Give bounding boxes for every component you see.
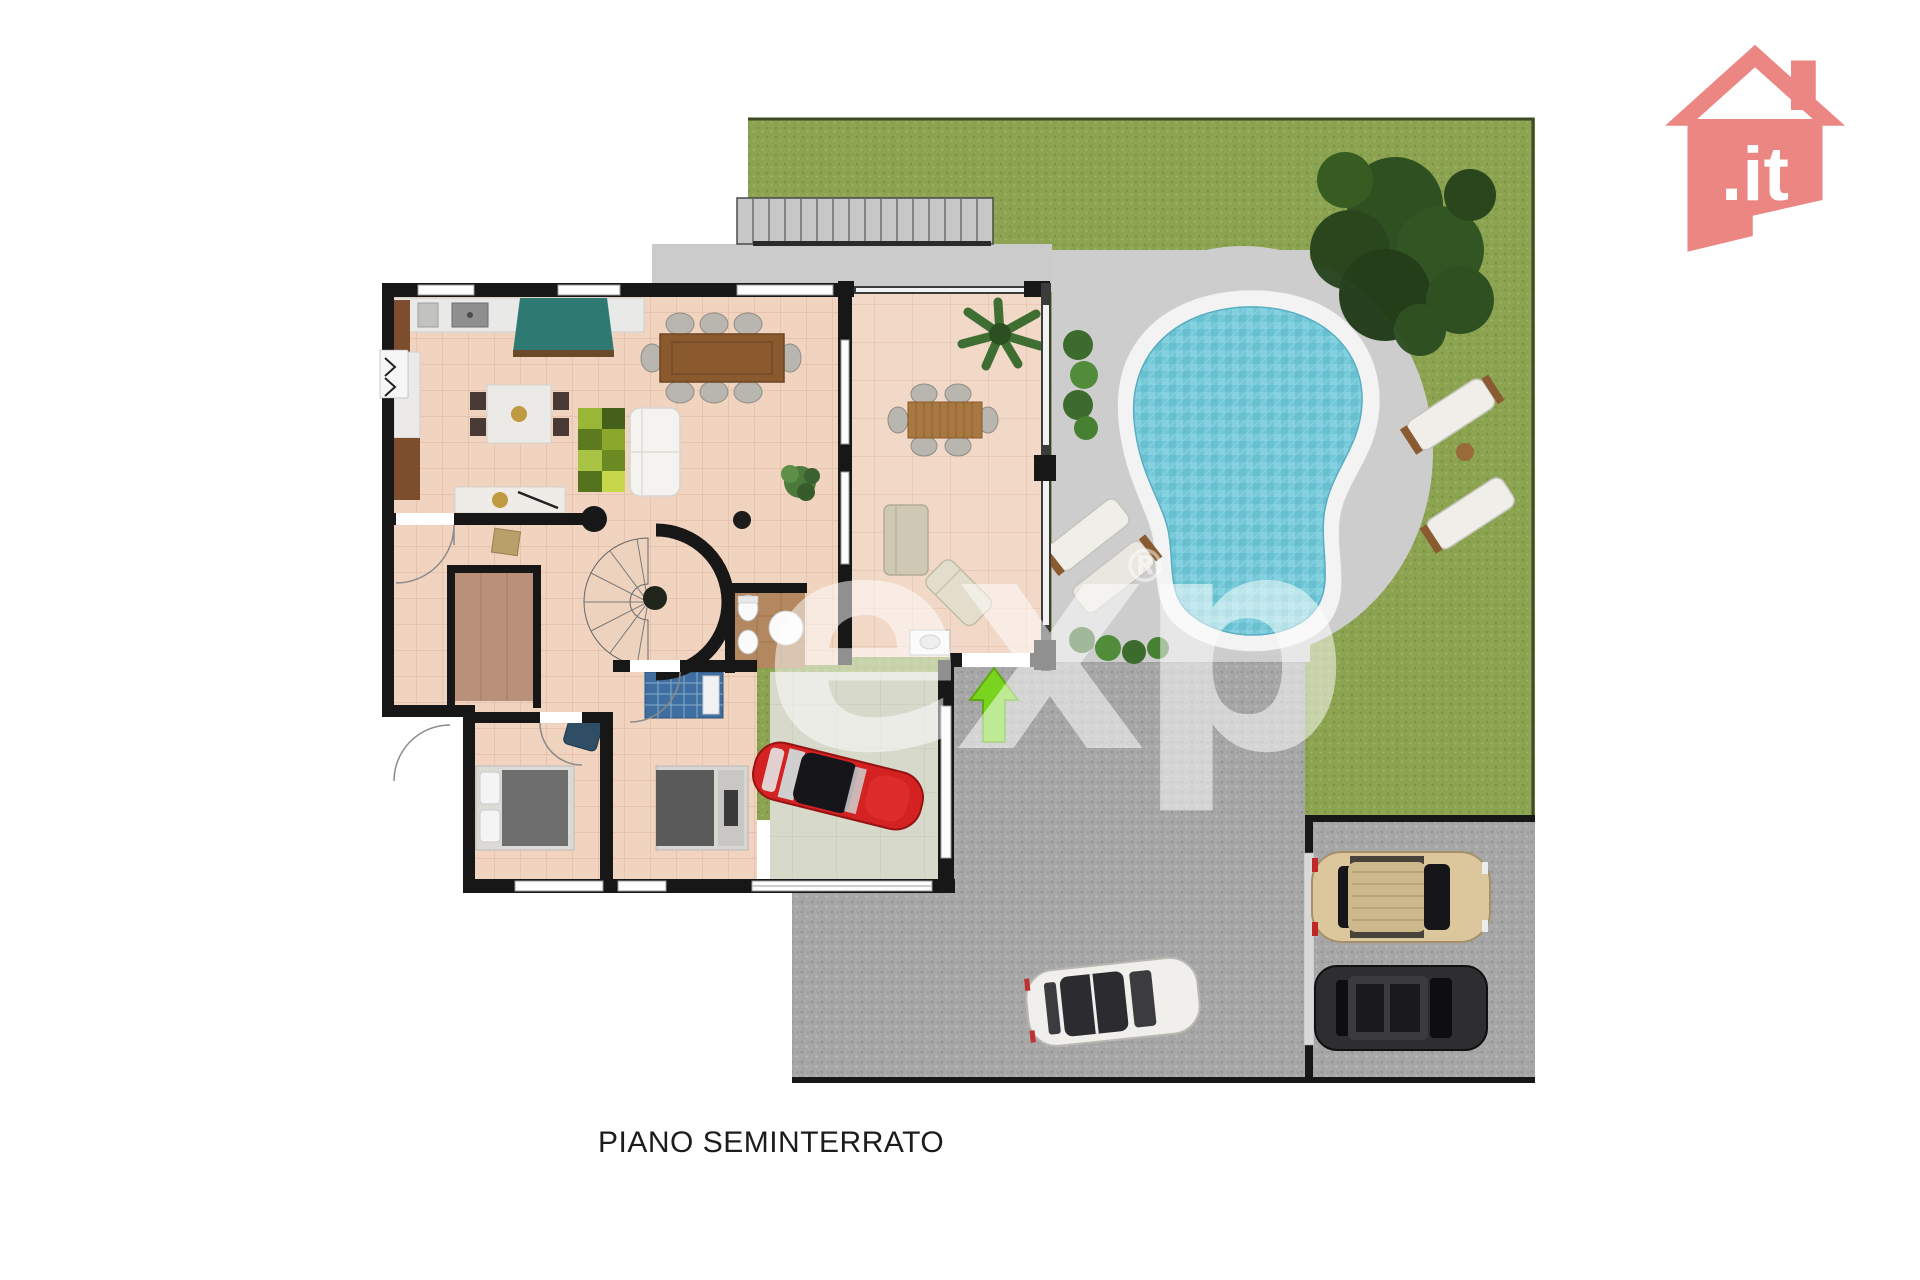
exp-watermark: exp ® xyxy=(762,470,1338,819)
glass-door xyxy=(841,340,849,444)
pillow xyxy=(703,676,719,714)
console-table xyxy=(455,487,565,513)
floor-caption: PIANO SEMINTERRATO xyxy=(598,1126,944,1160)
floorplan-drawing: exp ® .it xyxy=(0,0,1920,1280)
green-rug xyxy=(578,408,625,492)
logo-text: .it xyxy=(1721,132,1789,217)
bed-right xyxy=(656,766,748,850)
white-sofa xyxy=(630,408,680,496)
window xyxy=(618,881,666,891)
exterior-stairs xyxy=(652,198,1052,292)
table-centerpiece xyxy=(511,406,527,422)
teal-rug xyxy=(513,298,614,357)
column xyxy=(733,511,751,529)
window xyxy=(515,881,603,891)
bed-left xyxy=(476,766,574,850)
floorplan-page: exp ® .it PIANO SEMINTERRATO xyxy=(0,0,1920,1280)
kitchen-cabinet xyxy=(394,300,410,352)
beige-suv xyxy=(1312,852,1490,942)
tv-unit xyxy=(724,790,738,826)
registered-mark: ® xyxy=(1122,539,1168,593)
site-logo: .it xyxy=(1665,45,1845,252)
side-table xyxy=(1456,443,1474,461)
black-suv xyxy=(1315,966,1487,1050)
hall-cabinet xyxy=(491,528,520,555)
fireplace xyxy=(380,350,408,398)
bidet xyxy=(738,630,758,654)
window xyxy=(737,285,833,295)
closet-floor xyxy=(455,573,533,701)
window xyxy=(558,285,620,295)
window xyxy=(418,285,474,295)
watermark-text: exp xyxy=(762,470,1338,819)
stove xyxy=(418,303,438,327)
